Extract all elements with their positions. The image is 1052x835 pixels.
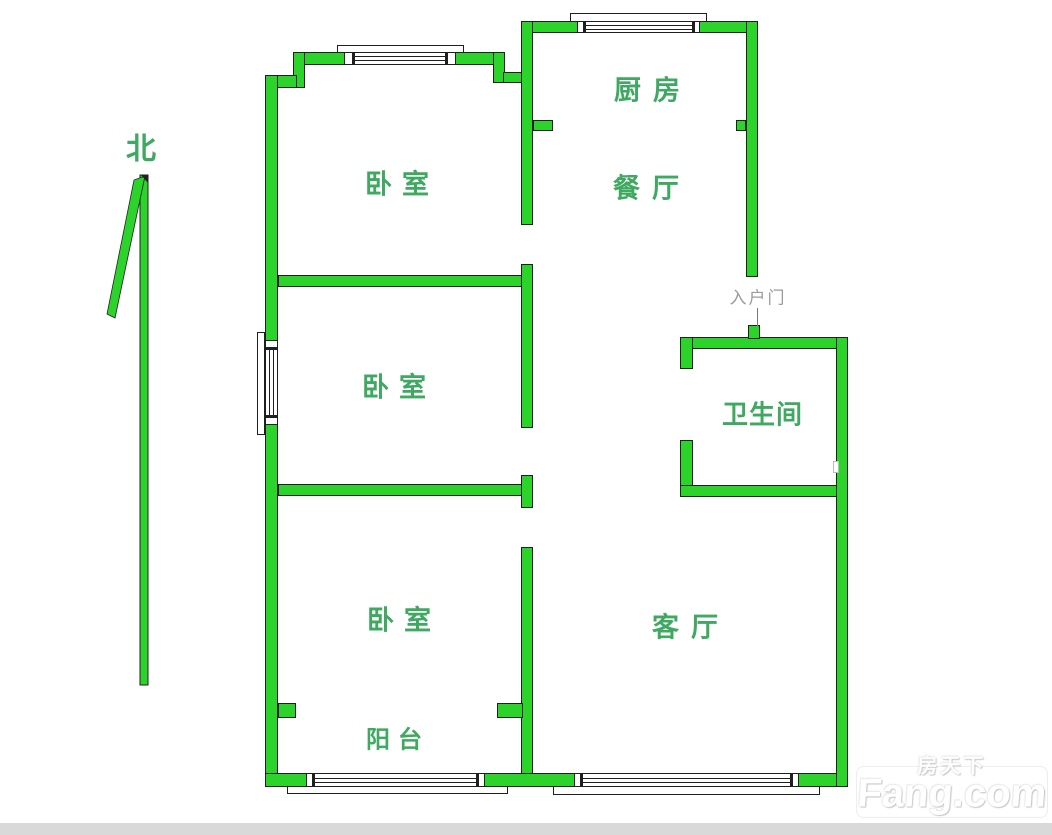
wall-stub-balcony-left: [278, 703, 296, 718]
room-label-bathroom: 卫生间: [721, 395, 803, 432]
wall-bathroom-entry-stub: [748, 325, 760, 339]
window-sill: [257, 332, 265, 435]
window-glass-line: [315, 778, 476, 779]
wall-center-mid2: [521, 475, 533, 508]
window-sill: [553, 786, 820, 795]
window-glass-line: [355, 60, 445, 61]
entry-door-label: 入户门: [728, 284, 787, 309]
room-label-bedroom-top: 卧室: [355, 163, 439, 202]
window-glass-line: [586, 29, 692, 30]
window-cap: [312, 773, 315, 787]
window-cap: [265, 347, 278, 350]
watermark-brand-domain: Fang.com: [856, 772, 1048, 817]
wall-center-lower: [521, 547, 533, 787]
window-cap: [790, 773, 793, 787]
window-body: [577, 21, 700, 33]
room-label-bedroom-middle: 卧室: [352, 366, 436, 405]
window-cap: [476, 773, 479, 787]
wall-divider-bedroom2-3: [278, 484, 533, 496]
window-body: [344, 52, 456, 65]
north-label: 北: [126, 124, 156, 168]
window-sill: [287, 786, 508, 794]
wall-bathroom-left-upper: [680, 337, 693, 369]
window-body: [265, 340, 278, 425]
wall-center-upper: [521, 21, 533, 225]
window-cap: [352, 52, 355, 65]
window-cap: [445, 52, 448, 65]
window-cap: [580, 773, 583, 787]
wall-stub-dining-left: [533, 120, 553, 131]
window-cap: [692, 21, 695, 33]
window-glass-line: [583, 778, 790, 779]
entry-door-leader-line: [757, 308, 758, 326]
window-glass-line: [586, 25, 692, 26]
wall-dining-right: [746, 21, 758, 277]
room-label-dining: 餐厅: [601, 167, 691, 206]
wall-center-mid1: [521, 264, 533, 428]
wall-bathroom-top: [680, 337, 848, 349]
room-label-kitchen: 厨房: [602, 69, 692, 108]
north-arrow: [88, 158, 158, 698]
window-glass-line: [315, 782, 476, 783]
wall-bathroom-bottom: [680, 485, 840, 497]
window-glass-line: [273, 350, 274, 415]
window-glass-line: [269, 350, 270, 415]
floor-plan: 北 卧室 厨房 餐厅 卧室 卫生间 卧室 客厅 阳台 入户门 房天下 Fang.…: [0, 0, 1052, 835]
room-label-living: 客厅: [640, 606, 730, 645]
room-label-bedroom-bottom: 卧室: [357, 599, 441, 638]
wall-right-notch: [833, 461, 839, 473]
window-body: [306, 773, 485, 787]
window-glass-line: [355, 56, 445, 57]
wall-stub-balcony-right: [497, 703, 523, 718]
wall-left-outer: [265, 75, 278, 787]
window-cap: [583, 21, 586, 33]
wall-right-outer: [836, 337, 848, 787]
wall-stub-dining-right: [736, 120, 746, 131]
bottom-bar: [0, 823, 1052, 835]
window-cap: [265, 415, 278, 418]
window-body: [574, 773, 799, 787]
wall-connector-horizontal: [503, 72, 523, 83]
wall-divider-bedroom1-2: [278, 275, 533, 287]
room-label-balcony: 阳台: [358, 720, 430, 755]
window-glass-line: [583, 782, 790, 783]
